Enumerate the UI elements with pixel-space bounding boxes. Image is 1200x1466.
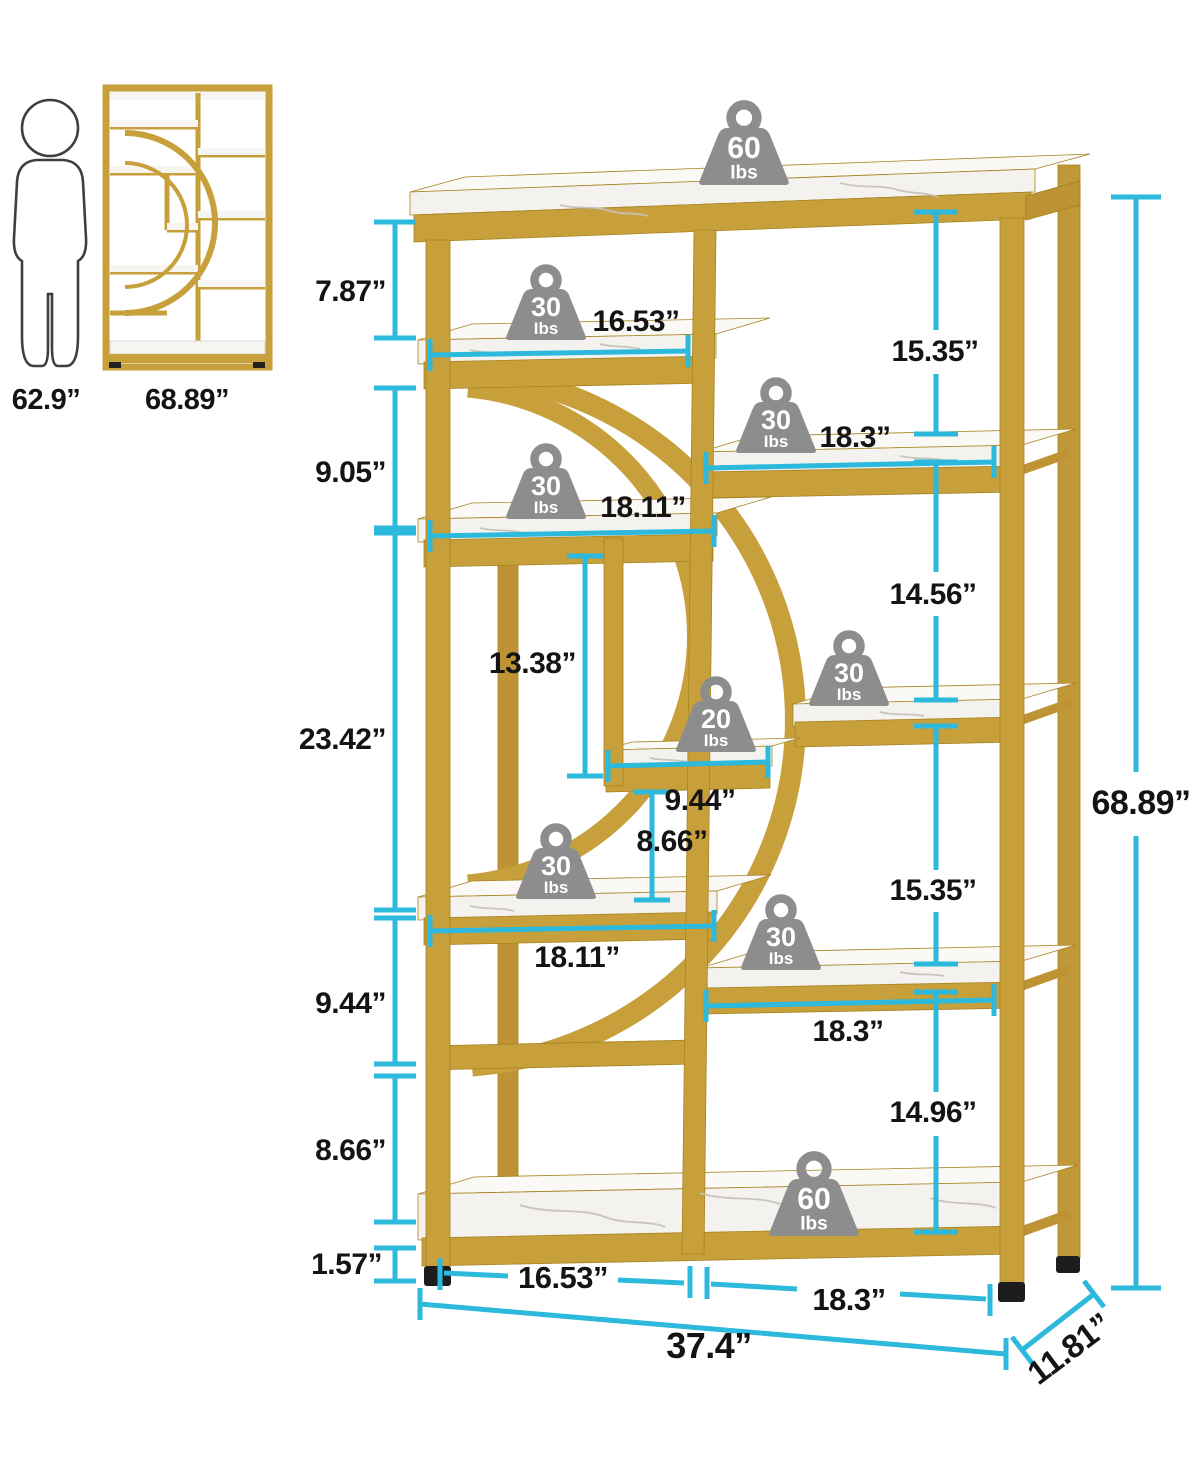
dim-left-9-44: 9.44” (315, 989, 386, 1019)
weight-unit: Ibs (544, 878, 569, 897)
weight-unit: Ibs (764, 432, 789, 451)
weight-unit: Ibs (704, 731, 729, 750)
weight-value: 30 (761, 405, 791, 435)
dim-right-14-96: 14.96” (889, 1098, 976, 1128)
weight-value: 30 (834, 658, 864, 688)
ref-person-height-label: 62.9” (46, 386, 114, 415)
bookshelf-illustration: 60 Ibs 30 Ibs 30 Ibs 30 Ibs 30 Ibs 20 Ib… (0, 0, 1200, 1466)
dim-left-23-42: 23.42” (299, 725, 386, 755)
dim-shelf-18-3a: 18.3” (820, 423, 891, 453)
dim-shelf-9-44: 9.44” (665, 786, 736, 816)
weight-value: 60 (797, 1183, 831, 1216)
weight-unit: Ibs (800, 1213, 828, 1234)
weight-value: 60 (727, 132, 761, 165)
dim-right-15-35a: 15.35” (891, 337, 978, 367)
dim-mid-8-66: 8.66” (637, 827, 708, 857)
weight-badge-shelf-b: 30 Ibs (736, 382, 816, 454)
dim-shelf-18-3b: 18.3” (813, 1017, 884, 1047)
weight-value: 30 (541, 851, 571, 881)
weight-unit: Ibs (769, 949, 794, 968)
weight-unit: Ibs (730, 162, 758, 183)
dim-bottom-16-53: 16.53” (518, 1262, 608, 1293)
weight-unit: Ibs (837, 685, 862, 704)
weight-value: 30 (766, 922, 796, 952)
weight-value: 30 (531, 471, 561, 501)
weight-badge-top-60: 60 Ibs (699, 105, 788, 185)
dim-left-7-87: 7.87” (315, 277, 386, 307)
dim-right-14-56: 14.56” (889, 580, 976, 610)
weight-unit: Ibs (534, 498, 559, 517)
product-dimension-diagram: 60 Ibs 30 Ibs 30 Ibs 30 Ibs 30 Ibs 20 Ib… (0, 0, 1200, 1466)
dim-right-15-35b: 15.35” (889, 876, 976, 906)
weight-value: 20 (701, 704, 731, 734)
weight-badge-shelf-d: 30 Ibs (809, 635, 889, 707)
weight-unit: Ibs (534, 319, 559, 338)
dim-overall-height: 68.89” (1091, 786, 1190, 820)
dim-bottom-18-3: 18.3” (812, 1284, 885, 1315)
weight-badge-shelf-g: 30 Ibs (741, 899, 821, 971)
human-figure-icon (14, 100, 86, 366)
dim-shelf-16-53: 16.53” (592, 307, 679, 337)
weight-badge-shelf-a: 30 Ibs (506, 269, 586, 341)
dim-left-8-66: 8.66” (315, 1136, 386, 1166)
dim-overall-width: 37.4” (666, 1328, 752, 1364)
dim-left-1-57: 1.57” (311, 1250, 382, 1280)
mini-bookshelf-icon (106, 88, 269, 368)
ref-unit-height-label: 68.89” (187, 386, 271, 415)
dim-mid-13-38: 13.38” (489, 649, 576, 679)
weight-value: 30 (531, 292, 561, 322)
weight-badge-shelf-c: 30 Ibs (506, 448, 586, 520)
dim-shelf-18-11a: 18.11” (600, 493, 685, 523)
dim-shelf-18-11b: 18.11” (534, 943, 619, 973)
dim-left-9-05: 9.05” (315, 458, 386, 488)
